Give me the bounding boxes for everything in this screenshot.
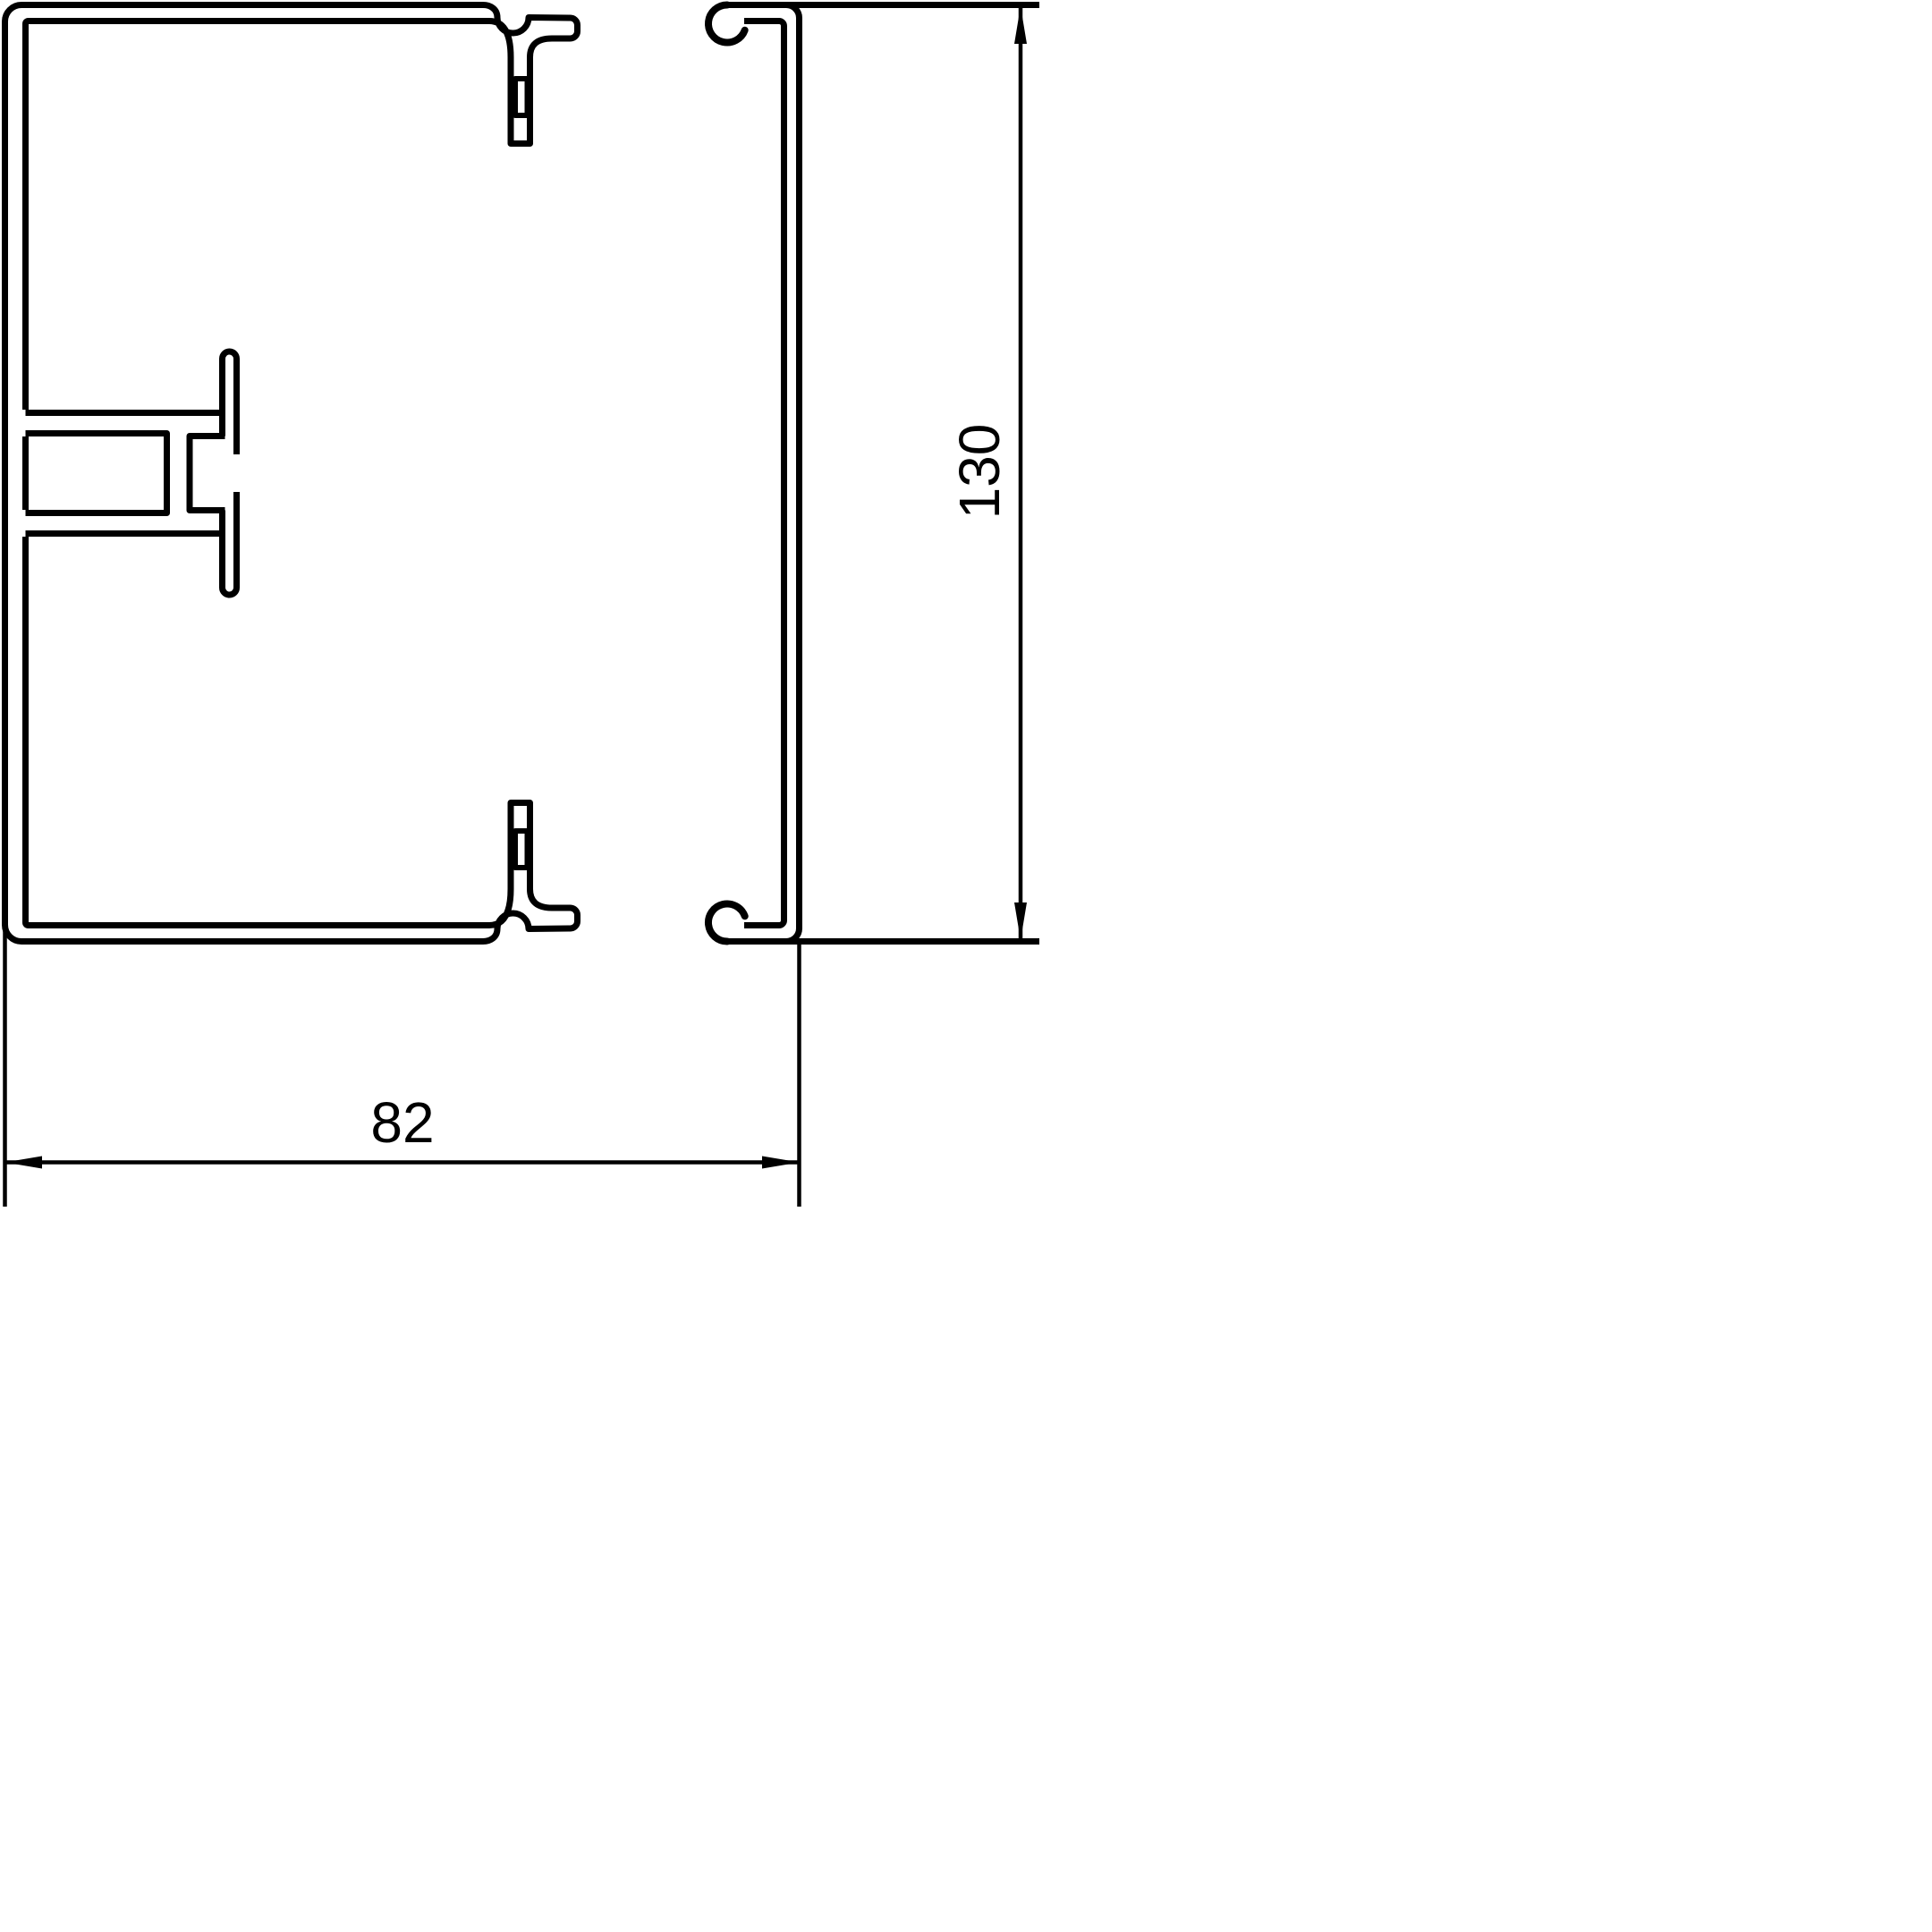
height-dimension-label: 130 xyxy=(947,424,1012,520)
technical-drawing-page: 82 130 xyxy=(0,0,1932,1932)
canvas-background xyxy=(0,0,1932,1932)
width-dimension-label: 82 xyxy=(370,1090,434,1155)
duct-cross-section-drawing: 82 130 xyxy=(0,0,1932,1932)
